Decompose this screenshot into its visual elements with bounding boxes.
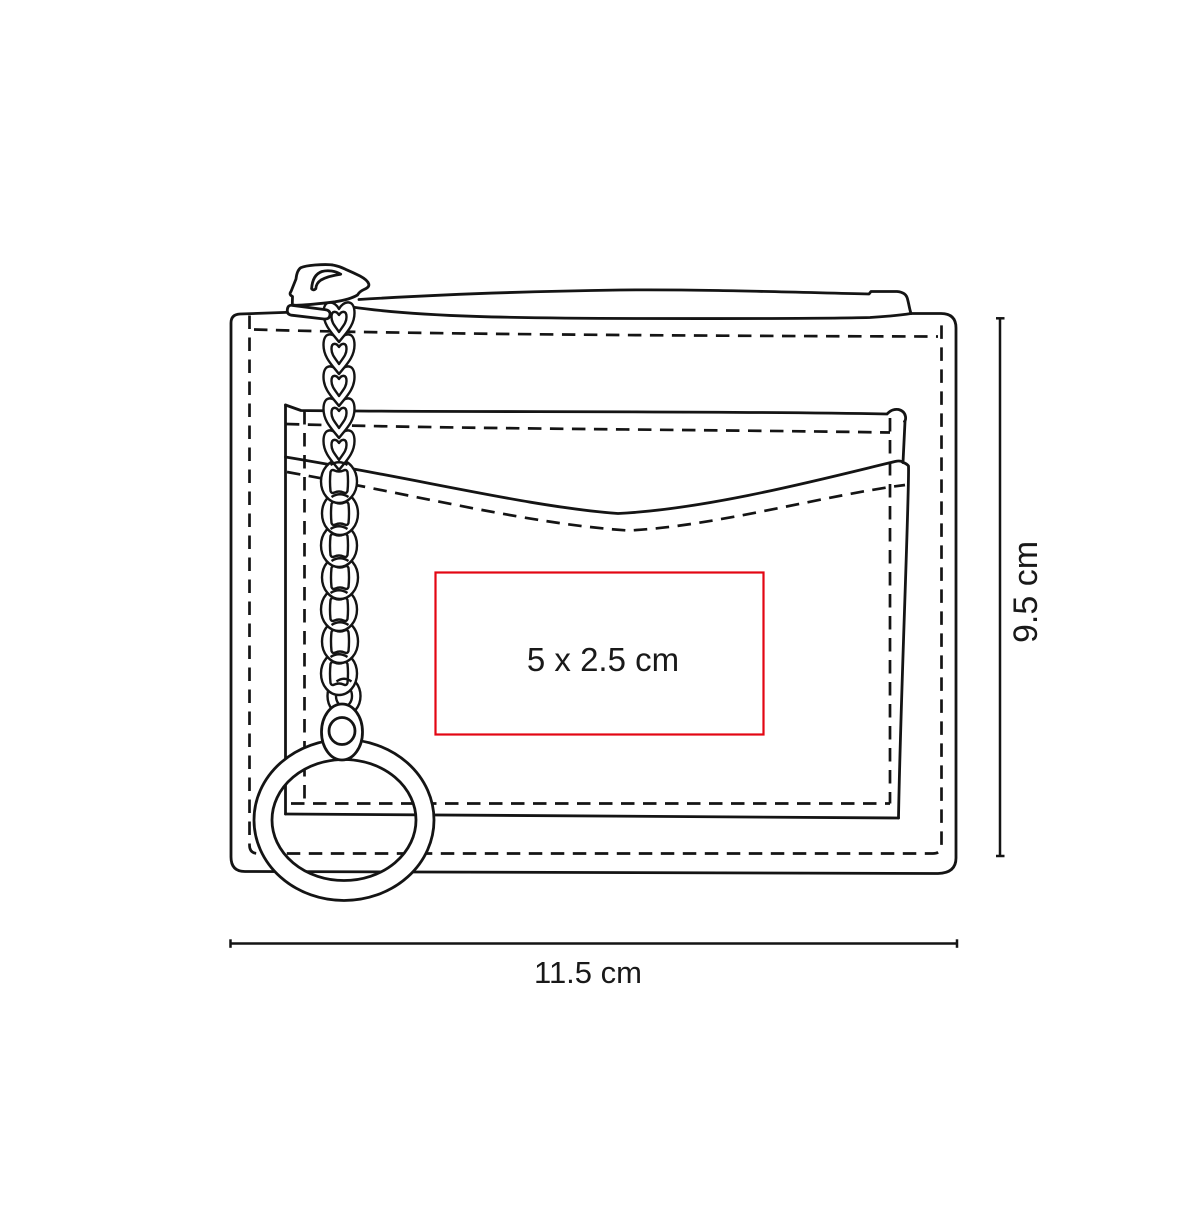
svg-text:11.5 cm: 11.5 cm [534,955,642,990]
svg-text:5 x 2.5 cm: 5 x 2.5 cm [527,641,679,678]
svg-text:9.5 cm: 9.5 cm [1007,541,1045,643]
